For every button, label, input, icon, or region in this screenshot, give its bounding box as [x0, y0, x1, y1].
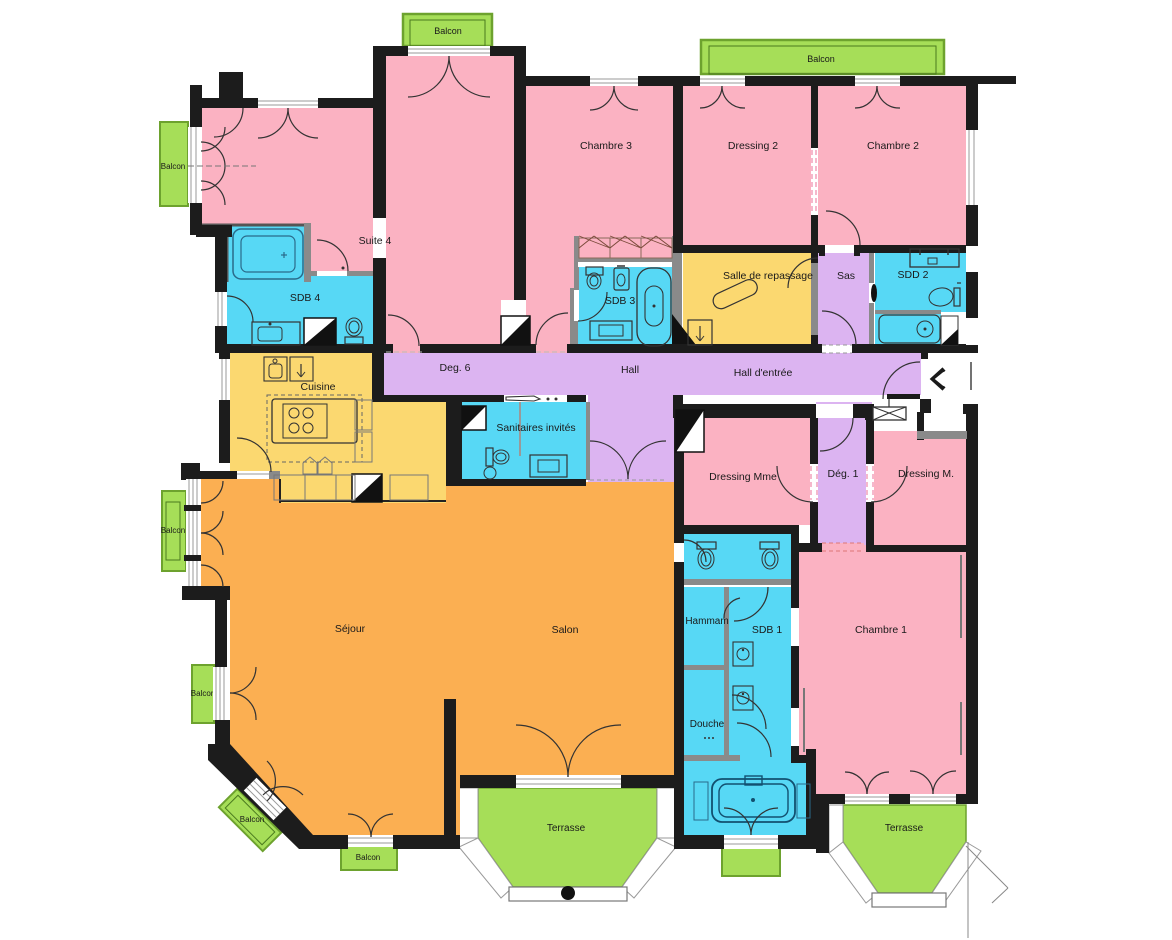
- svg-text:Dressing Mme: Dressing Mme: [709, 471, 777, 483]
- svg-text:Balcon: Balcon: [161, 162, 185, 171]
- svg-text:Balcon: Balcon: [807, 54, 835, 64]
- svg-text:Hammam: Hammam: [685, 616, 728, 627]
- svg-text:SDB 4: SDB 4: [290, 292, 321, 304]
- svg-text:SDD 2: SDD 2: [898, 269, 929, 281]
- svg-text:Dressing 2: Dressing 2: [728, 140, 778, 152]
- svg-text:Séjour: Séjour: [335, 623, 366, 635]
- svg-text:Hall: Hall: [621, 364, 639, 376]
- svg-text:Balcon: Balcon: [240, 815, 264, 824]
- svg-text:Dressing M.: Dressing M.: [898, 468, 954, 480]
- svg-text:SDB 1: SDB 1: [752, 624, 783, 636]
- svg-text:Hall d'entrée: Hall d'entrée: [734, 367, 793, 379]
- svg-text:Salon: Salon: [552, 624, 579, 636]
- svg-text:Dég. 1: Dég. 1: [828, 468, 859, 480]
- svg-text:Suite 4: Suite 4: [359, 235, 392, 247]
- svg-text:Douche: Douche: [690, 719, 725, 730]
- svg-text:Chambre 2: Chambre 2: [867, 140, 919, 152]
- svg-text:Terrasse: Terrasse: [885, 823, 924, 834]
- svg-text:Sanitaires invités: Sanitaires invités: [496, 422, 575, 434]
- svg-text:Chambre 3: Chambre 3: [580, 140, 632, 152]
- svg-text:Deg. 6: Deg. 6: [440, 362, 471, 374]
- svg-text:Terrasse: Terrasse: [547, 823, 586, 834]
- svg-text:Chambre 1: Chambre 1: [855, 624, 907, 636]
- svg-text:Salle de repassage: Salle de repassage: [723, 270, 813, 282]
- svg-text:Balcon: Balcon: [161, 526, 185, 535]
- svg-text:Sas: Sas: [837, 270, 855, 282]
- svg-text:SDB 3: SDB 3: [605, 295, 636, 307]
- svg-text:Balcon: Balcon: [434, 26, 462, 36]
- svg-text:Balcon: Balcon: [356, 853, 380, 862]
- svg-text:Cuisine: Cuisine: [300, 381, 335, 393]
- svg-text:Balcon: Balcon: [191, 689, 215, 698]
